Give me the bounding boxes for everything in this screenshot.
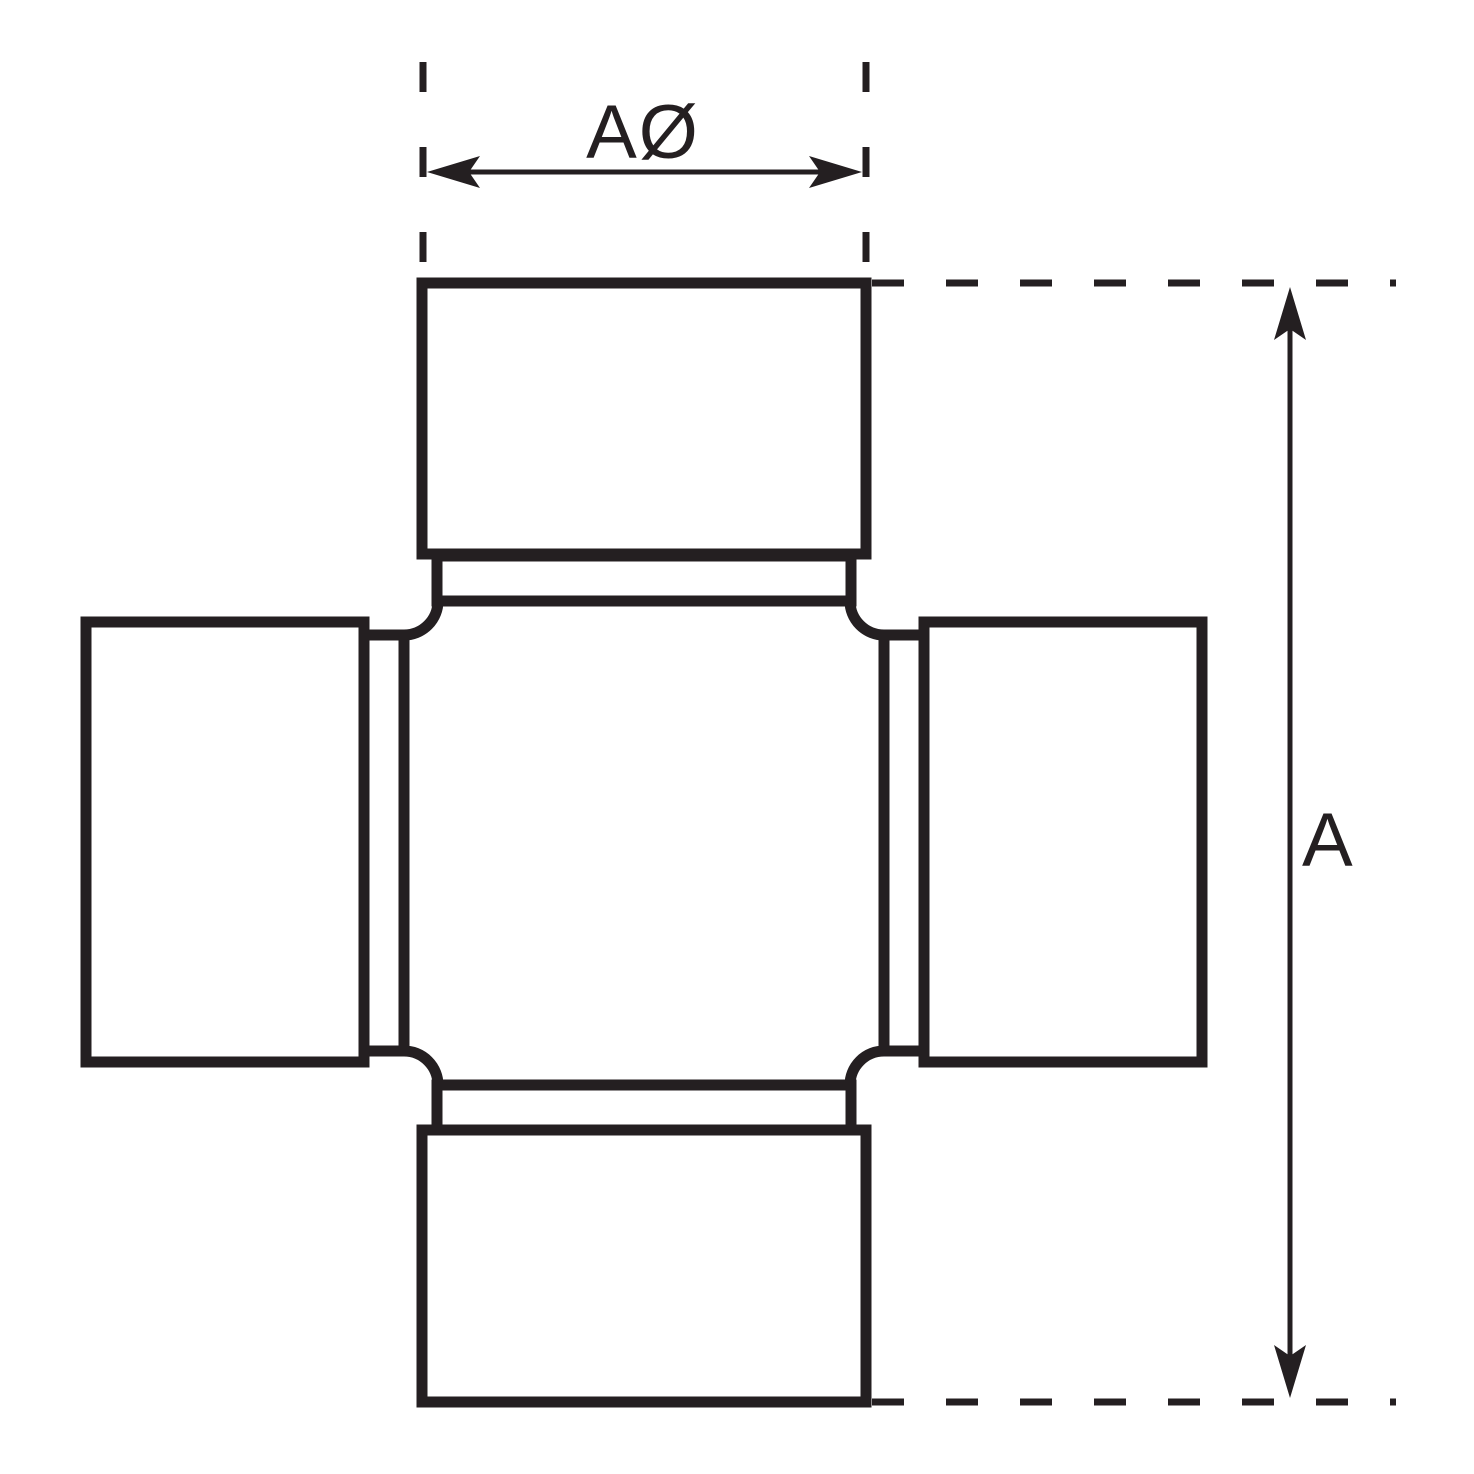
- right-collar: [884, 635, 924, 1051]
- center-body: [404, 601, 884, 1085]
- top-bearing-cap: [422, 283, 866, 554]
- left-collar: [364, 635, 404, 1051]
- drawing-canvas: AØ A: [0, 0, 1474, 1474]
- bottom-bearing-cap: [422, 1130, 866, 1402]
- universal-joint-cross-drawing: AØ A: [0, 0, 1474, 1474]
- length-dimension-label: A: [1302, 798, 1355, 883]
- right-bearing-cap: [924, 622, 1202, 1062]
- left-bearing-cap: [86, 622, 364, 1062]
- width-dimension-label: AØ: [586, 90, 700, 175]
- top-collar: [437, 556, 851, 601]
- bottom-collar: [437, 1085, 851, 1130]
